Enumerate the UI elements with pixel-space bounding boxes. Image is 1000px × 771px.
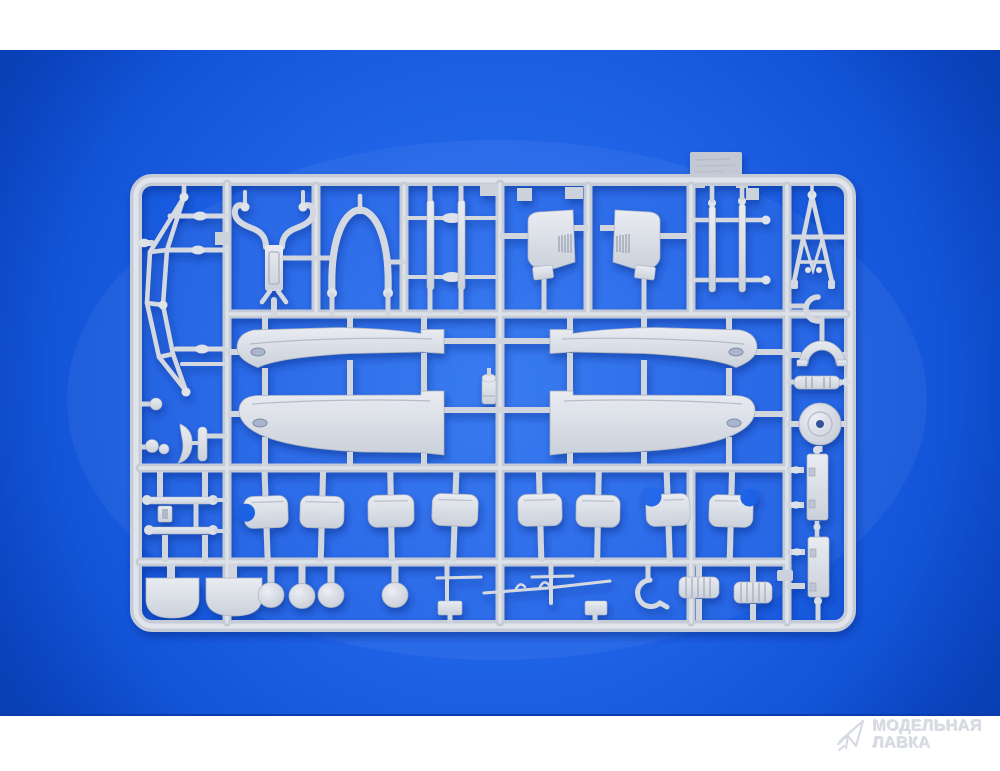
- model-kit-sprue-photo: [0, 0, 1000, 771]
- photo-bottom-edge: [0, 714, 1000, 716]
- watermark-line1: МОДЕЛЬНАЯ: [873, 718, 982, 735]
- photo-vignette: [0, 50, 1000, 716]
- watermark: МОДЕЛЬНАЯ ЛАВКА: [836, 718, 982, 754]
- paper-plane-logo-icon: [836, 718, 866, 754]
- product-photo-page: МОДЕЛЬНАЯ ЛАВКА: [0, 0, 1000, 771]
- watermark-line2: ЛАВКА: [873, 735, 982, 752]
